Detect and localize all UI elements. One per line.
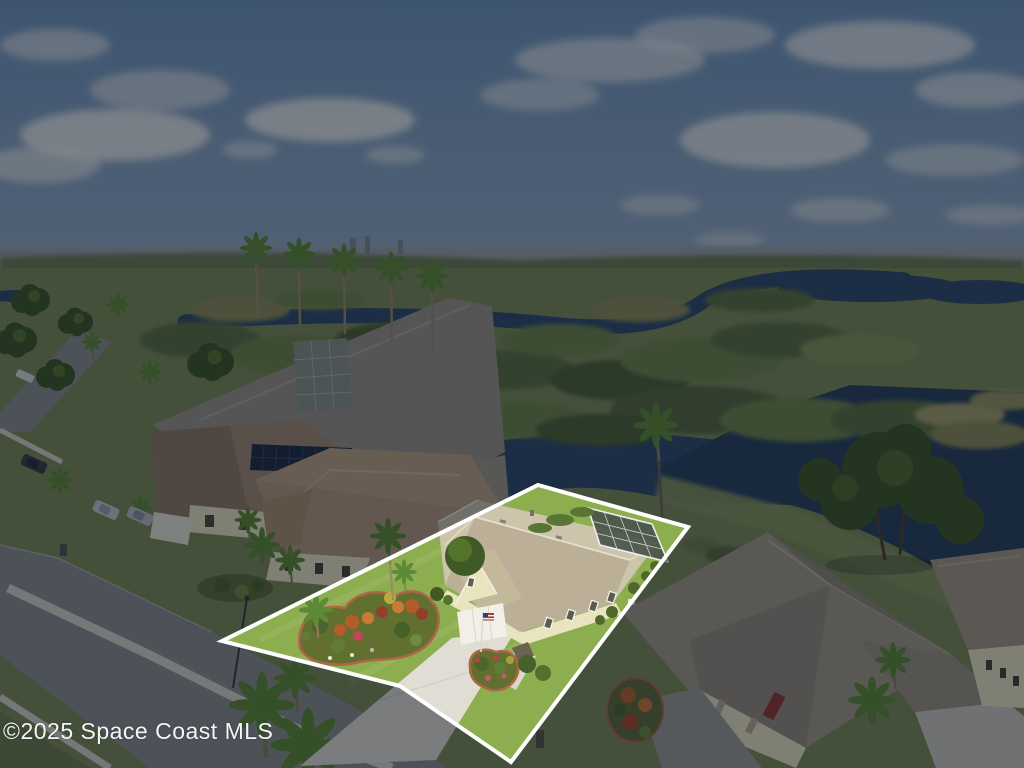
- mls-watermark: ©2025 Space Coast MLS: [3, 719, 273, 744]
- aerial-photo: ©2025 Space Coast MLS: [0, 0, 1024, 768]
- landscaped-bed-entry: [470, 650, 518, 691]
- photo-canvas: [0, 0, 1024, 768]
